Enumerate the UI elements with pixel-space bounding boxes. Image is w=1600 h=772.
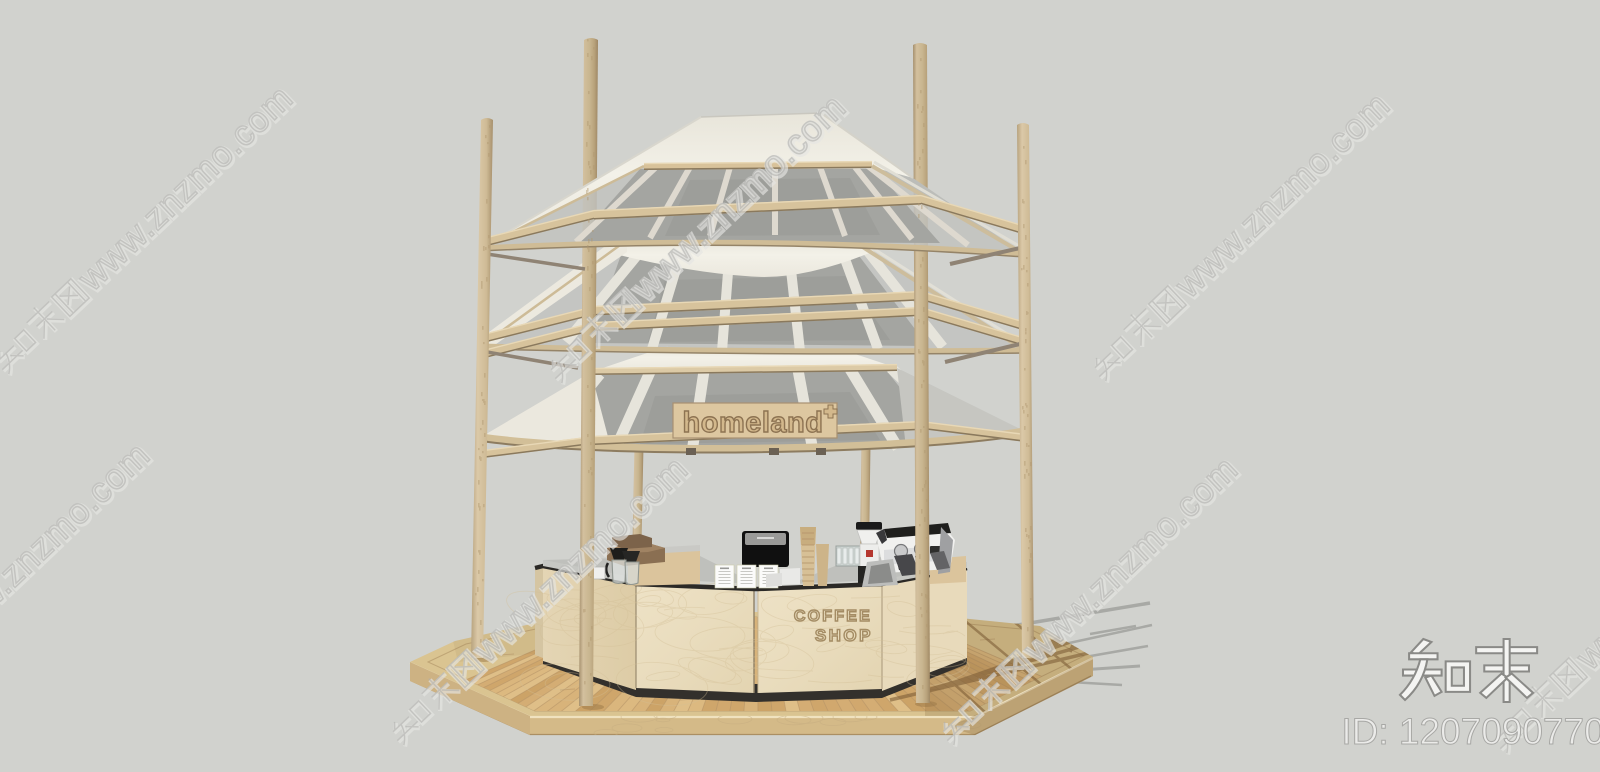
svg-text:COFFEE: COFFEE [794,608,872,625]
svg-text:homeland: homeland [683,407,824,439]
svg-text:ID: 1207090770: ID: 1207090770 [1341,711,1600,752]
svg-text:SHOP: SHOP [815,626,873,645]
